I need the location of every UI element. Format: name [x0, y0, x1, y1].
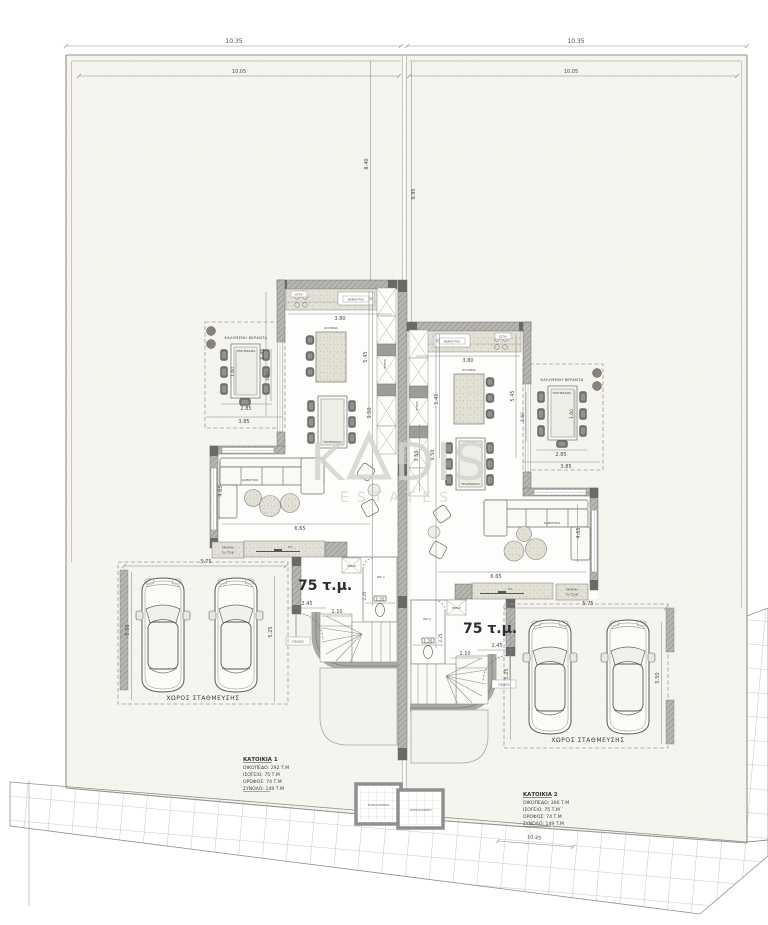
dim: 2.45 [301, 601, 312, 607]
fireplace-label: ΓΙΑ ΤΖΑΚΙ [566, 593, 579, 597]
sink-label: ΝΕΡΟΧΥΤΗΣ [444, 339, 460, 343]
tall-cabinets-left: ΨΥΓΕΙΟ [377, 288, 396, 454]
info-line: ΟΙΚΟΠΕΔΟ: 292 Τ.Μ [243, 765, 289, 771]
fireplace-label: ΠΡΟΝΟΙΑ [222, 546, 234, 550]
floor-plan-page: ΣΚΥΒΑΛΑΠΟΘΗΚΗ ΣΚΥΒΑΛΑΠΟΘΗΚΗ ΚΑΛΥΜΕΝΗ ΒΕΡ… [0, 0, 768, 925]
dim: 3.80 [462, 358, 473, 364]
veranda-dining-label: ΤΡΑΠΕΖΑΡΙΑ [552, 391, 573, 395]
living-label: ΚΑΘΙΣΤΙΚΟ [544, 521, 561, 525]
info-line: ΟΙΚΟΠΕΔΟ: 306 Τ.Μ [523, 800, 569, 806]
car [136, 578, 190, 692]
fireplace-label: ΓΙΑ ΤΖΑΚΙ [222, 551, 235, 555]
info-line: ΣΥΝΟΛΟ: 149 Τ.Μ [243, 786, 284, 792]
dim: 1.60 [230, 367, 236, 377]
garbage-store-2: ΣΚΥΒΑΛΑΠΟΘΗΚΗ [398, 790, 443, 828]
info-line: ΙΣΟΓΕΙΟ: 75 Τ.Μ [523, 807, 560, 813]
info-line: ΣΥΝΟΛΟ: 149 Τ.Μ [523, 821, 564, 827]
veranda-label: ΚΑΛΥΜΕΝΗ ΒΕΡΑΝΤΑ [225, 336, 268, 340]
closet-label: ΕΡΜΑΡΙ [452, 607, 461, 610]
stove-label: ΕΣΤΙΑ [295, 292, 303, 296]
fireplace-provision-left: ΠΡΟΝΟΙΑ ΓΙΑ ΤΖΑΚΙ [212, 542, 244, 558]
dim: 9.50 [367, 407, 373, 418]
floor-plan-drawing: ΣΚΥΒΑΛΑΠΟΘΗΚΗ ΣΚΥΒΑΛΑΠΟΘΗΚΗ ΚΑΛΥΜΕΝΗ ΒΕΡ… [0, 0, 768, 925]
info-line: ΟΡΟΦΟΣ: 74 Τ.Μ [243, 779, 282, 785]
dim: 5.45 [510, 390, 516, 401]
garbage-store-label: ΣΚΥΒΑΛΑΠΟΘΗΚΗ [410, 809, 432, 812]
fridge-label: ΨΥΓΕΙΟ [383, 359, 387, 369]
dim: 5.45 [363, 351, 369, 362]
dim: 2.25 [362, 591, 367, 600]
veranda-dining-label: ΤΡΑΠΕΖΑΡΙΑ [236, 349, 257, 353]
dim: 10.05 [232, 69, 246, 75]
garbage-store-label: ΣΚΥΒΑΛΑΠΟΘΗΚΗ [368, 804, 390, 807]
stove-label: ΕΣΤΙΑ [499, 334, 507, 338]
dim: 1.10 [459, 651, 470, 657]
watermark-text: DIS [394, 433, 488, 493]
dim: 9.95 [411, 188, 417, 199]
info-line: ΟΡΟΦΟΣ: 74 Τ.Μ [523, 814, 562, 820]
wc-label: WC 1 [423, 617, 431, 621]
parking-label: ΧΩΡΟΣ ΣΤΑΘΜΕΥΣΗΣ [551, 737, 624, 744]
info-line: ΙΣΟΓΕΙΟ: 75 Τ.Μ [243, 772, 280, 778]
dim: 2.45 [491, 643, 502, 649]
unit-area: 75 τ.μ. [463, 621, 517, 637]
dim: 3.80 [334, 316, 345, 322]
dim: 10.45 [527, 834, 542, 841]
car [209, 578, 263, 692]
dim: 1.25 [376, 597, 385, 602]
watermark-text: K [310, 433, 346, 493]
dim: 5.75 [200, 559, 211, 565]
dim: 4.65 [218, 485, 224, 496]
dim: 2.85 [240, 406, 251, 412]
tv-wall-right: TV [472, 583, 553, 599]
car [523, 620, 577, 734]
wc-label: WC 1 [377, 575, 385, 579]
watermark-tagline: ESTATES [340, 490, 456, 506]
dim: 5.45 [434, 393, 440, 404]
living-label: ΚΑΘΙΣΤΙΚΟ [242, 478, 259, 482]
dim: 3.85 [238, 419, 249, 425]
dim: 3.60 [265, 371, 271, 381]
info-title: ΚΑΤΟΙΚΙΑ 1 [243, 757, 278, 763]
parking-label: ΧΩΡΟΣ ΣΤΑΘΜΕΥΣΗΣ [166, 695, 239, 702]
kitchen-label: ΚΟΥΖΙΝΑ [324, 326, 338, 330]
info-title: ΚΑΤΟΙΚΙΑ 2 [523, 792, 558, 798]
dim: 4.65 [576, 527, 582, 538]
veranda-label: ΚΑΛΥΜΕΝΗ ΒΕΡΑΝΤΑ [541, 378, 584, 382]
dim: 1.60 [569, 409, 575, 419]
dim: 10.05 [564, 69, 578, 75]
dim: 5.25 [504, 668, 510, 679]
dim: 5.75 [582, 601, 593, 607]
dim: 5.50 [125, 624, 131, 635]
dim: 10.35 [567, 38, 584, 45]
car [601, 620, 655, 734]
unit-area: 75 τ.μ. [298, 578, 352, 594]
dim: 10.35 [225, 38, 242, 45]
dim: 5.50 [655, 672, 661, 683]
tv-wall-left: TV [244, 541, 325, 557]
dim: 1.25 [424, 639, 433, 644]
dim: 3.60 [520, 412, 526, 422]
kitchen-label: ΚΟΥΖΙΝΑ [462, 368, 476, 372]
kitchen-counter-right: ΝΕΡΟΧΥΤΗΣ ΕΣΤΙΑ [413, 331, 521, 352]
garbage-store-1: ΣΚΥΒΑΛΑΠΟΘΗΚΗ [356, 784, 401, 824]
fridge-label: ΨΥΓΕΙΟ [415, 401, 419, 411]
dim: 8.40 [364, 158, 370, 169]
dim: 6.65 [294, 526, 305, 532]
dim: 2.85 [555, 452, 566, 458]
dim: 5.45 [260, 348, 266, 359]
closet-label: ΕΡΜΑΡΙ [347, 565, 356, 568]
dim: 1.10 [331, 609, 342, 615]
fireplace-label: ΠΡΟΝΟΙΑ [566, 588, 578, 592]
fireplace-provision-right: ΠΡΟΝΟΙΑ ΓΙΑ ΤΖΑΚΙ [556, 584, 588, 600]
dim: 5.25 [268, 626, 274, 637]
entrance-label: ΕΙΣΟΔΟΣ [292, 640, 304, 644]
dim: 6.65 [490, 574, 501, 580]
dim: 3.85 [560, 464, 571, 470]
dim: 2.25 [438, 633, 443, 642]
sink-label: ΝΕΡΟΧΥΤΗΣ [348, 297, 364, 301]
